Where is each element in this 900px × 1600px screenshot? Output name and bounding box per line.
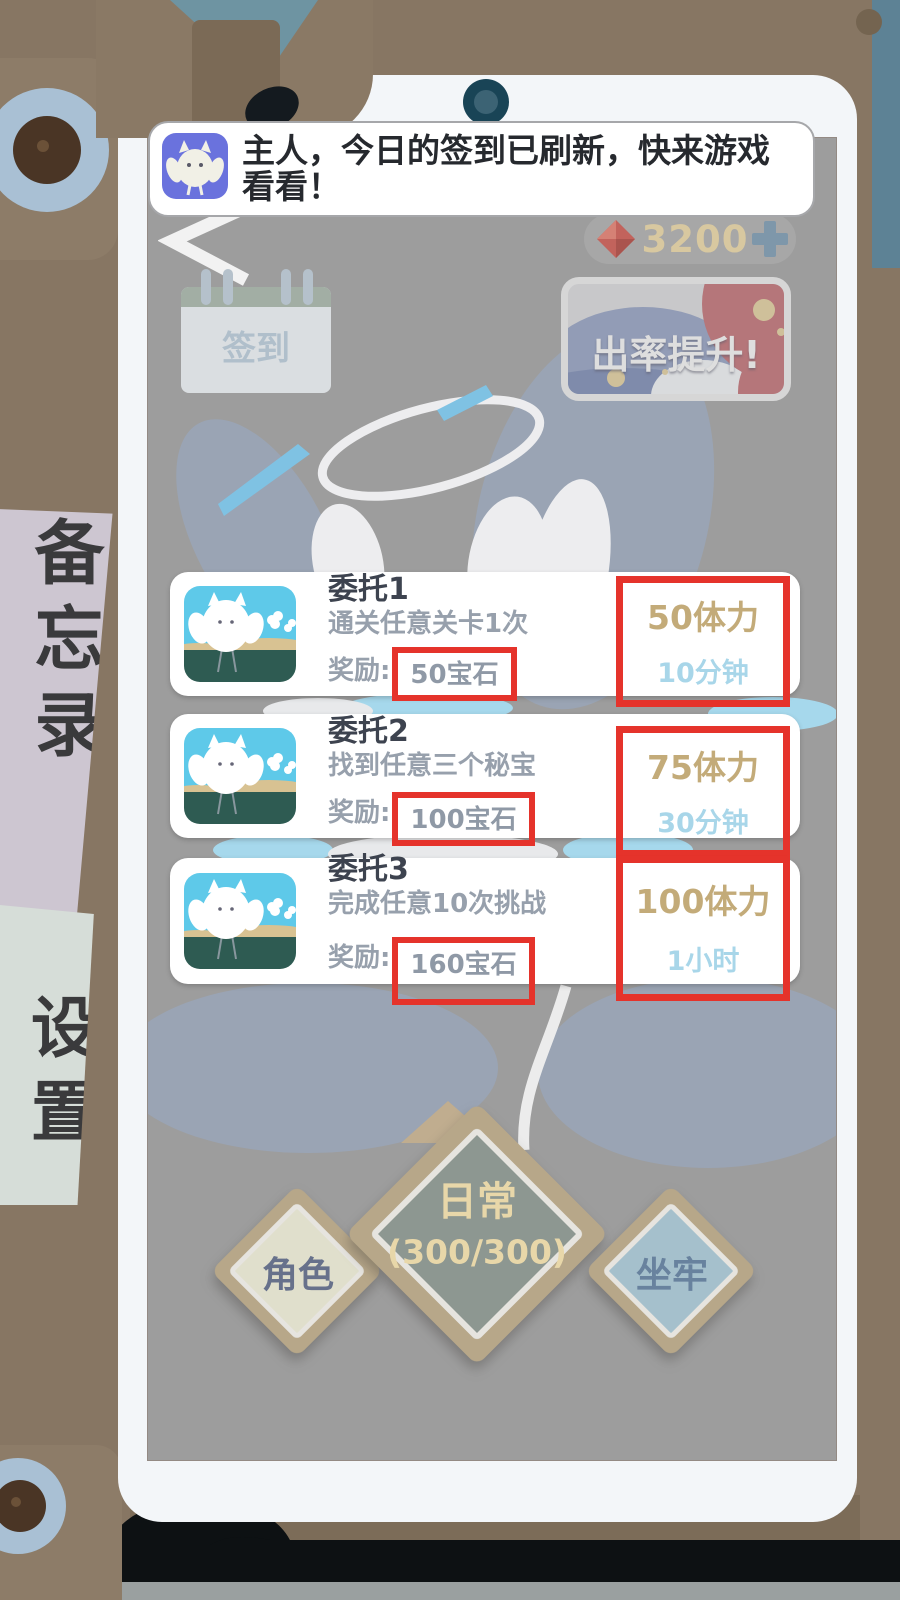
camera-dot xyxy=(463,79,509,125)
stamina-cost: 100体力 xyxy=(627,875,779,923)
quest-desc: 找到任意三个秘宝 xyxy=(328,751,588,781)
notification-message: 主人，今日的签到已刷新，快来游戏看看！ xyxy=(242,133,794,205)
nav-daily-counter: (300/300) xyxy=(387,1233,567,1272)
quest-card-2[interactable]: 委托2 找到任意三个秘宝 奖励: 100宝石 75体力 30分钟 xyxy=(170,714,800,838)
reward-gems-annotation: 160宝石 xyxy=(392,937,534,1005)
bolt-icon xyxy=(0,1445,122,1600)
stamina-cost: 50体力 xyxy=(627,591,779,639)
reward-label: 奖励: xyxy=(328,792,390,829)
nav-character-label: 角色 xyxy=(262,1246,334,1298)
quest-title: 委托2 xyxy=(328,715,588,749)
quest-card-3[interactable]: 委托3 完成任意10次挑战 奖励: 160宝石 100体力 1小时 xyxy=(170,858,800,984)
nav-jail-label: 坐牢 xyxy=(636,1246,708,1298)
quest-thumbnail xyxy=(184,728,296,824)
quest-title: 委托3 xyxy=(328,853,588,887)
owl-app-icon xyxy=(162,133,228,199)
quest-thumbnail xyxy=(184,873,296,969)
quest-desc: 通关任意关卡1次 xyxy=(328,609,588,639)
quest-desc: 完成任意10次挑战 xyxy=(328,889,588,919)
quest-title: 委托1 xyxy=(328,573,588,607)
signin-label: 签到 xyxy=(181,321,331,370)
machine-top-plate xyxy=(96,0,373,138)
rateup-label: 出率提升! xyxy=(568,324,784,379)
plus-icon[interactable] xyxy=(752,221,788,257)
reward-label: 奖励: xyxy=(328,937,390,974)
quest-card-1[interactable]: 委托1 通关任意关卡1次 奖励: 50宝石 50体力 10分钟 xyxy=(170,572,800,696)
rateup-banner[interactable]: 出率提升! xyxy=(561,277,791,401)
stamina-cost: 75体力 xyxy=(627,741,779,789)
duration: 10分钟 xyxy=(627,651,779,690)
reward-gems-annotation: 50宝石 xyxy=(392,647,516,701)
currency-bar[interactable]: 3200 xyxy=(584,214,796,264)
game-screenshot-stage: 3200 签到 出率提升! xyxy=(0,0,900,1600)
gem-icon xyxy=(594,217,638,261)
cost-annotation-box: 75体力 30分钟 xyxy=(616,726,790,857)
reward-label: 奖励: xyxy=(328,650,390,687)
cost-annotation-box: 100体力 1小时 xyxy=(616,856,790,1001)
signin-calendar-button[interactable]: 签到 xyxy=(181,269,331,393)
gem-amount: 3200 xyxy=(638,218,752,261)
quest-thumbnail xyxy=(184,586,296,682)
machine-arm-bottom-left xyxy=(0,1445,122,1600)
duration: 1小时 xyxy=(627,939,779,978)
nav-daily-label: 日常 xyxy=(437,1169,517,1227)
cost-annotation-box: 50体力 10分钟 xyxy=(616,576,790,707)
reward-gems-annotation: 100宝石 xyxy=(392,792,534,846)
duration: 30分钟 xyxy=(627,801,779,840)
notification-toast[interactable]: 主人，今日的签到已刷新，快来游戏看看！ xyxy=(148,121,815,217)
